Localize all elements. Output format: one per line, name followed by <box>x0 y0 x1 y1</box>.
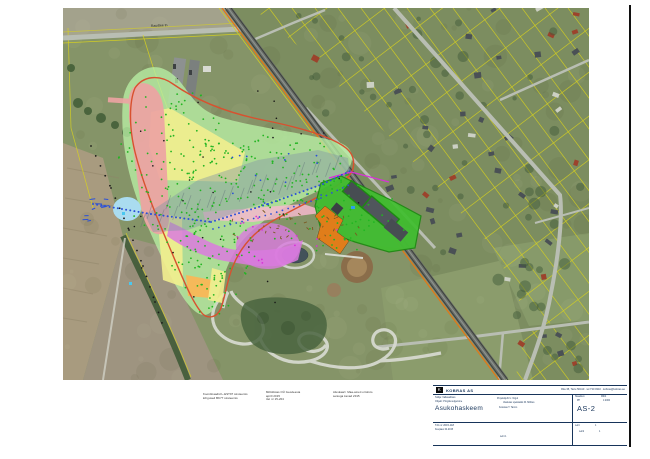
tb-line-top <box>433 385 627 386</box>
lehti-value: 1 <box>599 430 600 433</box>
map-note-block-3: Aluskaart: Maa-ameti ortofoto seisuga ke… <box>333 391 423 398</box>
scale-label: Mõõt <box>601 396 606 398</box>
map-note-block-2: Mõõdistas OÜ Geodeesia aprill 2015 töö n… <box>266 391 321 402</box>
drawing-sheet: Raudtee tn Koordinaadid L-EST97 süsteemi… <box>0 0 650 459</box>
blue-marker <box>351 206 355 209</box>
map-note-block-1: Koordinaadid L-EST97 süsteemis kõrgused … <box>203 393 261 400</box>
tb-line-2 <box>433 394 627 395</box>
lehti-label: Lehti <box>579 430 584 433</box>
tb-divider <box>572 394 573 445</box>
footer-note: Leht 1 <box>500 436 506 438</box>
tb-person-2: Vastutav spetsialist M. Mõttus <box>503 401 534 404</box>
orthophoto-map[interactable]: Raudtee tn <box>63 8 589 380</box>
company-address: Riia 35, Tartu 50410 · tel 730 0310 · ko… <box>561 388 625 391</box>
scale-value: 1:2000 <box>603 400 610 402</box>
note-line: töö nr 15-204 <box>266 398 321 402</box>
leht-value: 1 <box>595 424 596 427</box>
leht-label: Leht <box>575 424 580 427</box>
sheet-frame-line <box>629 5 631 447</box>
company-logo-icon: K <box>436 387 443 394</box>
stage-label: Staadium <box>575 396 585 398</box>
work-number: Töö nr 2015-118 <box>435 424 454 427</box>
drawing-title: Asukohaskeem <box>435 405 483 412</box>
sheet-code: AS-2 <box>577 404 595 413</box>
stage-value: PP <box>577 400 580 402</box>
title-block: K KOBRAS AS Riia 35, Tartu 50410 · tel 7… <box>433 383 627 446</box>
date-label: Kuupäev 04.2015 <box>435 429 453 431</box>
map-canvas[interactable]: Raudtee tn <box>63 8 589 380</box>
tb-line-3 <box>433 422 627 423</box>
note-line: seisuga kevad 2015 <box>333 395 423 399</box>
note-line: kõrgused BK77 süsteemis <box>203 397 261 401</box>
tb-person-1: Projektijuht U. Nigul <box>497 397 518 400</box>
object-label: Objekt: Prügila sulgemine <box>435 400 462 403</box>
company-name: KOBRAS AS <box>446 388 473 393</box>
tb-person-3: Koostas T. Tamm <box>499 406 517 409</box>
tb-line-bottom <box>433 445 627 446</box>
client-label: Tellija: Vallavalitsus <box>435 396 455 399</box>
